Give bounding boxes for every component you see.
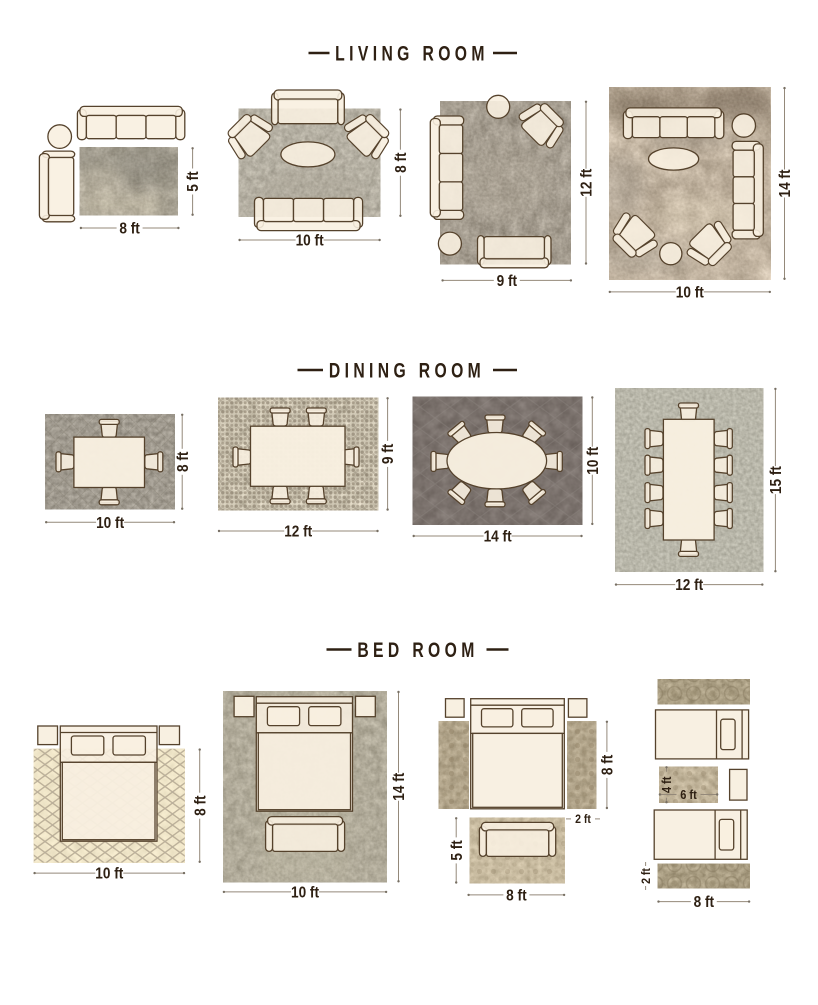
svg-text:14 ft: 14 ft xyxy=(391,773,408,801)
svg-text:12 ft: 12 ft xyxy=(284,524,312,541)
svg-text:8 ft: 8 ft xyxy=(393,152,410,173)
svg-text:10 ft: 10 ft xyxy=(95,866,123,883)
svg-text:10 ft: 10 ft xyxy=(296,233,324,250)
svg-text:10 ft: 10 ft xyxy=(291,885,319,902)
svg-text:10 ft: 10 ft xyxy=(676,285,704,302)
svg-text:14 ft: 14 ft xyxy=(484,529,512,546)
svg-text:LIVING ROOM: LIVING ROOM xyxy=(335,41,489,65)
svg-text:8 ft: 8 ft xyxy=(600,755,617,776)
svg-text:BED ROOM: BED ROOM xyxy=(357,638,478,662)
svg-text:8 ft: 8 ft xyxy=(119,221,140,238)
svg-text:6 ft: 6 ft xyxy=(680,788,697,802)
svg-text:12 ft: 12 ft xyxy=(579,169,596,197)
svg-text:5 ft: 5 ft xyxy=(185,171,202,192)
svg-text:8 ft: 8 ft xyxy=(175,451,192,472)
svg-text:14 ft: 14 ft xyxy=(777,169,794,197)
svg-text:9 ft: 9 ft xyxy=(497,273,518,290)
svg-text:8 ft: 8 ft xyxy=(694,894,715,911)
svg-text:8 ft: 8 ft xyxy=(193,795,210,816)
svg-text:2 ft: 2 ft xyxy=(575,814,591,827)
svg-text:5 ft: 5 ft xyxy=(449,840,466,861)
svg-text:2 ft: 2 ft xyxy=(640,868,653,884)
svg-text:10 ft: 10 ft xyxy=(96,515,124,532)
svg-text:DINING ROOM: DINING ROOM xyxy=(329,358,485,382)
svg-text:12 ft: 12 ft xyxy=(675,577,703,594)
svg-text:4 ft: 4 ft xyxy=(660,776,674,793)
svg-text:10 ft: 10 ft xyxy=(585,447,602,475)
svg-text:8 ft: 8 ft xyxy=(506,888,527,905)
svg-text:9 ft: 9 ft xyxy=(380,444,397,465)
svg-text:15 ft: 15 ft xyxy=(768,466,785,494)
